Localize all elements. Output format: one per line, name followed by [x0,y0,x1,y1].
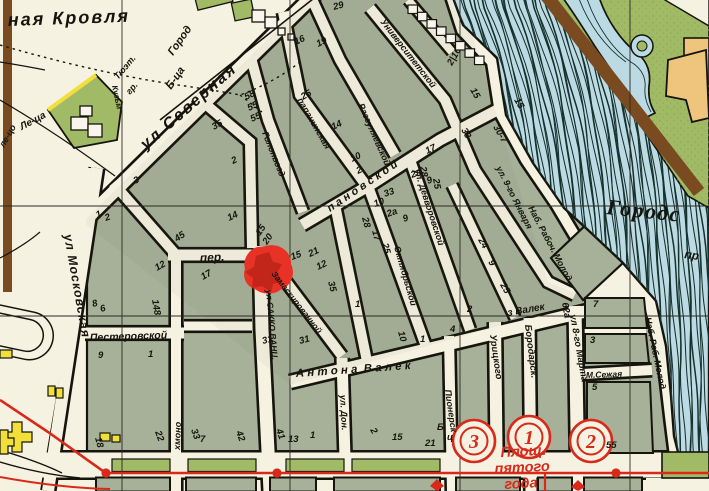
svg-text:7: 7 [593,299,599,310]
svg-text:15: 15 [392,432,403,443]
svg-text:9: 9 [98,350,104,361]
svg-text:ц: ц [447,432,453,443]
svg-text:3: 3 [590,335,596,346]
svg-text:1: 1 [310,430,315,441]
svg-text:пер.: пер. [199,250,224,265]
svg-text:ул. Дон.: ул. Дон. [338,394,350,431]
svg-text:Б: Б [437,422,444,433]
svg-text:2: 2 [585,431,596,453]
svg-text:1: 1 [355,299,360,310]
svg-text:3: 3 [468,431,479,453]
svg-text:5: 5 [592,382,598,393]
svg-text:13: 13 [288,434,299,445]
svg-text:55: 55 [606,440,617,451]
svg-text:1: 1 [148,349,153,360]
svg-text:хмоно: хмоно [172,421,183,451]
svg-text:1: 1 [420,334,425,345]
svg-text:7: 7 [200,434,206,445]
svg-text:года: года [504,475,538,491]
svg-text:2: 2 [466,304,473,315]
svg-text:21: 21 [424,438,436,449]
svg-text:ная Кровля: ная Кровля [7,6,130,30]
svg-text:М.Сежая: М.Сежая [586,369,623,380]
svg-text:пятого: пятого [494,459,550,478]
svg-text:пр: пр [684,247,700,263]
svg-text:4: 4 [449,324,456,335]
